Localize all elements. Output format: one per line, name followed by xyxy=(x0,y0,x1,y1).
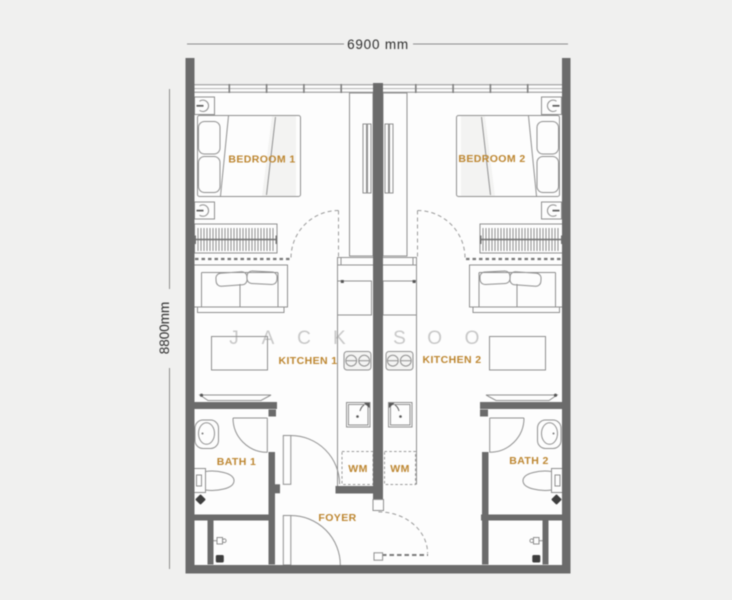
svg-text:C: C xyxy=(297,328,311,349)
svg-text:KITCHEN 1: KITCHEN 1 xyxy=(278,355,337,367)
svg-text:8800mm: 8800mm xyxy=(157,302,172,355)
svg-text:S: S xyxy=(393,328,406,349)
svg-text:K: K xyxy=(333,328,346,349)
svg-text:WM: WM xyxy=(390,463,409,475)
svg-text:BEDROOM 1: BEDROOM 1 xyxy=(228,154,295,166)
svg-text:O: O xyxy=(465,328,480,349)
svg-text:O: O xyxy=(427,328,442,349)
svg-text:KITCHEN 2: KITCHEN 2 xyxy=(422,354,481,366)
svg-text:A: A xyxy=(262,328,275,349)
svg-text:BATH 2: BATH 2 xyxy=(509,455,549,467)
svg-text:WM: WM xyxy=(348,463,367,475)
svg-text:6900 mm: 6900 mm xyxy=(347,37,409,52)
svg-text:FOYER: FOYER xyxy=(318,512,356,524)
svg-text:J: J xyxy=(229,328,239,349)
svg-text:BEDROOM 2: BEDROOM 2 xyxy=(458,153,525,165)
svg-text:BATH 1: BATH 1 xyxy=(217,456,257,468)
